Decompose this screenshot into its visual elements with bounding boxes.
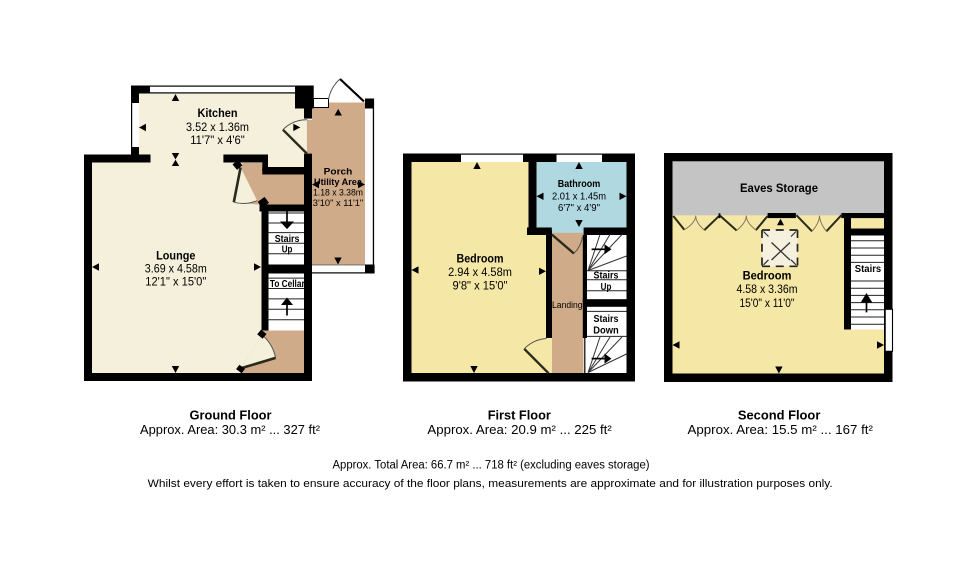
svg-text:Stairs: Stairs bbox=[594, 270, 619, 281]
svg-text:3.52 x 1.36m: 3.52 x 1.36m bbox=[186, 122, 249, 134]
svg-text:Landing: Landing bbox=[552, 300, 583, 310]
svg-text:Bedroom: Bedroom bbox=[743, 271, 792, 283]
svg-text:1.18 x 3.38m: 1.18 x 3.38m bbox=[313, 187, 363, 197]
svg-text:11'7" x 4'6": 11'7" x 4'6" bbox=[190, 135, 245, 147]
svg-text:Utility Area: Utility Area bbox=[314, 177, 363, 187]
svg-text:Second Floor: Second Floor bbox=[738, 408, 821, 423]
svg-text:3'10" x 11'1": 3'10" x 11'1" bbox=[313, 198, 364, 208]
svg-text:Stairs: Stairs bbox=[855, 264, 882, 275]
svg-text:Bedroom: Bedroom bbox=[457, 254, 504, 266]
svg-text:Stairs: Stairs bbox=[275, 234, 300, 245]
svg-text:Porch: Porch bbox=[324, 167, 353, 177]
svg-text:6'7" x 4'9": 6'7" x 4'9" bbox=[558, 203, 600, 214]
svg-text:Ground Floor: Ground Floor bbox=[190, 408, 272, 423]
svg-text:Kitchen: Kitchen bbox=[198, 108, 238, 120]
svg-text:2.94 x 4.58m: 2.94 x 4.58m bbox=[448, 267, 512, 279]
svg-text:First Floor: First Floor bbox=[488, 408, 551, 423]
svg-text:Lounge: Lounge bbox=[156, 251, 195, 263]
svg-text:Bathroom: Bathroom bbox=[558, 179, 601, 190]
svg-text:To Cellar: To Cellar bbox=[270, 279, 305, 290]
svg-text:Whilst every effort is taken t: Whilst every effort is taken to ensure a… bbox=[148, 478, 833, 490]
svg-text:Eaves Storage: Eaves Storage bbox=[740, 183, 818, 195]
svg-text:Up: Up bbox=[601, 282, 612, 293]
svg-text:4.58 x 3.36m: 4.58 x 3.36m bbox=[737, 284, 798, 296]
svg-text:Stairs: Stairs bbox=[594, 314, 619, 325]
svg-text:Approx. Total Area: 66.7 m² ..: Approx. Total Area: 66.7 m² ... 718 ft² … bbox=[333, 460, 650, 472]
svg-text:2.01 x 1.45m: 2.01 x 1.45m bbox=[552, 191, 606, 202]
svg-text:15'0" x 11'0": 15'0" x 11'0" bbox=[740, 298, 795, 310]
svg-text:3.69 x 4.58m: 3.69 x 4.58m bbox=[145, 264, 207, 276]
svg-text:Approx. Area: 20.9 m² ... 225: Approx. Area: 20.9 m² ... 225 ft² bbox=[427, 422, 612, 437]
svg-text:12'1" x 15'0": 12'1" x 15'0" bbox=[145, 277, 206, 289]
svg-text:Up: Up bbox=[282, 245, 293, 256]
svg-text:Down: Down bbox=[593, 326, 618, 337]
svg-text:Approx. Area: 15.5 m² ... 167: Approx. Area: 15.5 m² ... 167 ft² bbox=[688, 422, 874, 437]
svg-text:Approx. Area: 30.3 m² ... 327: Approx. Area: 30.3 m² ... 327 ft² bbox=[140, 422, 321, 437]
svg-text:9'8" x 15'0": 9'8" x 15'0" bbox=[453, 281, 508, 293]
